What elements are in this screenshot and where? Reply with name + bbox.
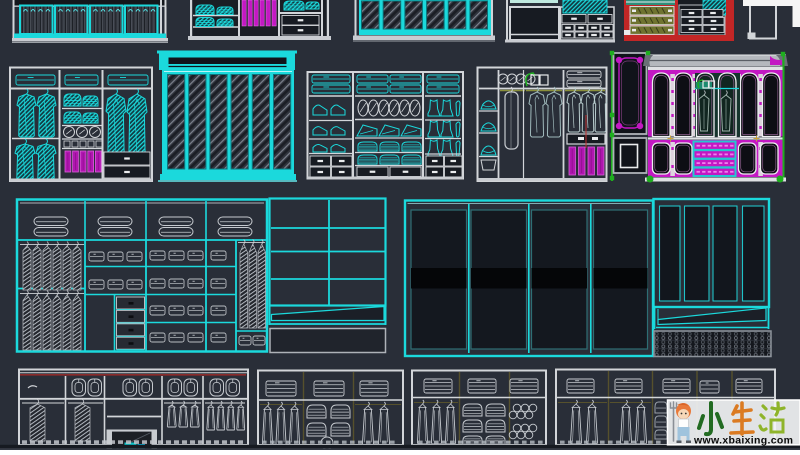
svg-text:www.xbaixing.com: www.xbaixing.com [693,435,793,447]
